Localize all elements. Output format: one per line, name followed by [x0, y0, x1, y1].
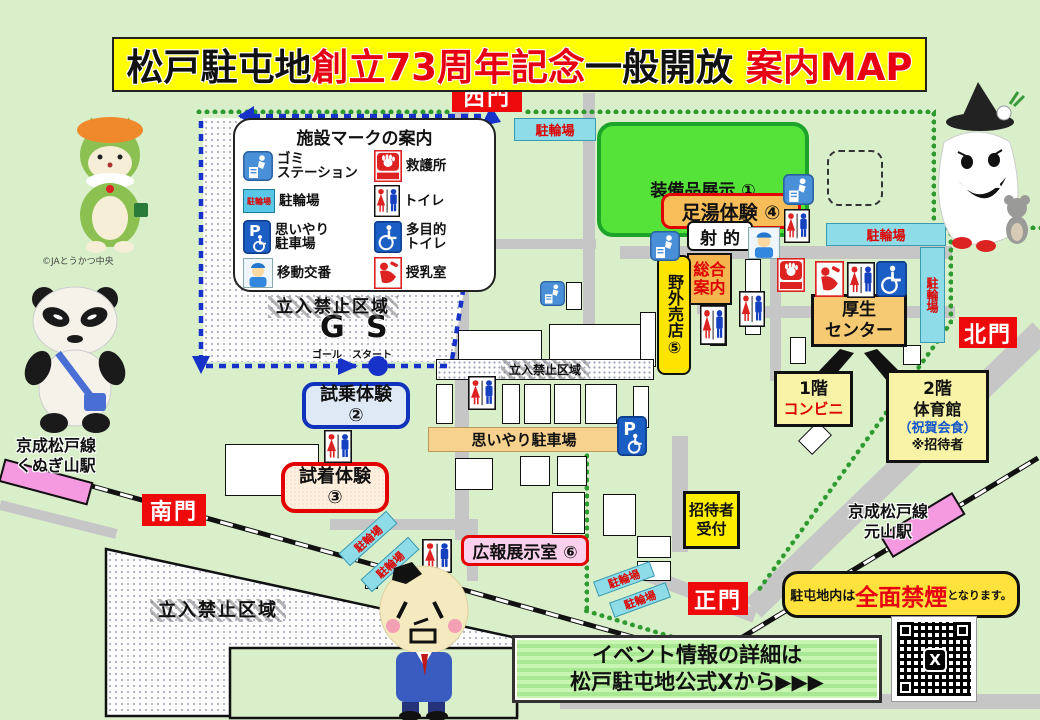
legend-item-bike: 駐輪場 駐輪場 — [243, 185, 372, 217]
trash-station-icon — [650, 231, 680, 261]
nursing-room-icon — [815, 261, 844, 297]
mobile-police-icon — [243, 258, 273, 288]
mobile-police-icon — [748, 227, 780, 259]
bicycle-parking-icon: 駐輪場 — [243, 189, 275, 213]
restricted-nw-label: 立入禁止区域 — [268, 292, 398, 317]
mascot-ja-cat — [48, 103, 173, 253]
info-desk-box: 総合 案内 — [687, 253, 732, 305]
map-title: 松戸駐屯地創立73周年記念一般開放 案内MAP — [112, 37, 927, 92]
restricted-sw-label: 立入禁止区域 — [150, 596, 286, 622]
event-info-banner: イベント情報の詳細は 松戸駐屯地公式Xから▶▶▶ — [512, 635, 882, 703]
trash-station-icon — [540, 281, 565, 306]
qr-finder — [897, 679, 914, 696]
goal-label: ゴール — [312, 346, 342, 361]
legend-item-police: 移動交番 — [243, 257, 372, 289]
no-smoking-notice: 駐屯地内は 全面禁煙 となります。 — [782, 571, 1020, 618]
qr-finder — [954, 622, 971, 639]
toilet-icon — [700, 305, 726, 345]
legend-title: 施設マークの案内 — [243, 124, 486, 149]
main-gate: 正門 — [688, 582, 748, 615]
multipurpose-toilet-icon — [876, 261, 907, 297]
outdoor-shop-box: 野外売店⑤ — [657, 255, 691, 375]
legend-item-aid: 救護所 — [374, 150, 486, 182]
priority-parking-icon: P — [243, 220, 271, 254]
nursing-room-icon — [374, 257, 402, 289]
legend-item-toilet: トイレ — [374, 185, 486, 217]
legend-item-trash: ゴミ ステーション — [243, 150, 372, 182]
shooting-box: 射 的 — [687, 221, 753, 251]
legend-item-nursing: 授乳室 — [374, 257, 486, 289]
test-ride-box: 試乗体験 ② — [302, 382, 410, 429]
bicycle-parking-label: 駐輪場 — [514, 118, 596, 141]
bicycle-parking-label: 駐輪場 — [920, 247, 945, 343]
convenience-store-box: 1階 コンビニ — [774, 371, 853, 427]
north-gate: 北門 — [959, 317, 1017, 348]
qr-finder — [897, 622, 914, 639]
priority-parking-icon: P — [617, 416, 647, 456]
first-aid-icon — [374, 150, 402, 182]
toilet-icon — [847, 262, 875, 298]
legend-item-priority-parking: P 思いやり 駐車場 — [243, 220, 372, 254]
legend-item-multi-toilet: 多目的 トイレ — [374, 220, 486, 254]
ja-credit: ©JAとうかつ中央 — [42, 254, 114, 267]
x-logo: X — [923, 648, 947, 672]
toilet-icon — [739, 291, 765, 327]
equipment-display-label: 装備品展示 ① — [601, 126, 805, 201]
garrison-open-day-map: 京成松戸線 くぬぎ山駅 京成松戸線 元山駅 立入禁止区域 思いやり駐車場 — [0, 0, 1040, 720]
facility-legend: 施設マークの案内 ゴミ ステーション 救護所 駐輪場 駐輪場 トイレ P 思いや… — [233, 118, 496, 292]
fitting-box: 試着体験 ③ — [281, 462, 389, 513]
guest-reception-box: 招待者 受付 — [683, 491, 740, 549]
trash-station-icon — [783, 174, 814, 205]
toilet-icon — [324, 430, 352, 463]
multipurpose-toilet-icon — [374, 221, 402, 253]
gym-box: 2階 体育館 （祝賀会食） ※招待者 — [886, 370, 989, 463]
south-gate: 南門 — [142, 494, 206, 526]
toilet-icon — [468, 376, 496, 410]
qr-code: X — [891, 616, 977, 702]
mascot-matsudo-san — [368, 562, 490, 720]
toilet-icon — [784, 209, 810, 243]
mascot-panda — [18, 283, 133, 433]
start-label: スタート — [352, 346, 392, 361]
mascot-ghost — [922, 80, 1034, 255]
welfare-center-box: 厚生 センター — [811, 294, 907, 347]
trash-station-icon — [243, 151, 273, 181]
first-aid-icon — [777, 258, 805, 292]
toilet-icon — [374, 185, 400, 217]
